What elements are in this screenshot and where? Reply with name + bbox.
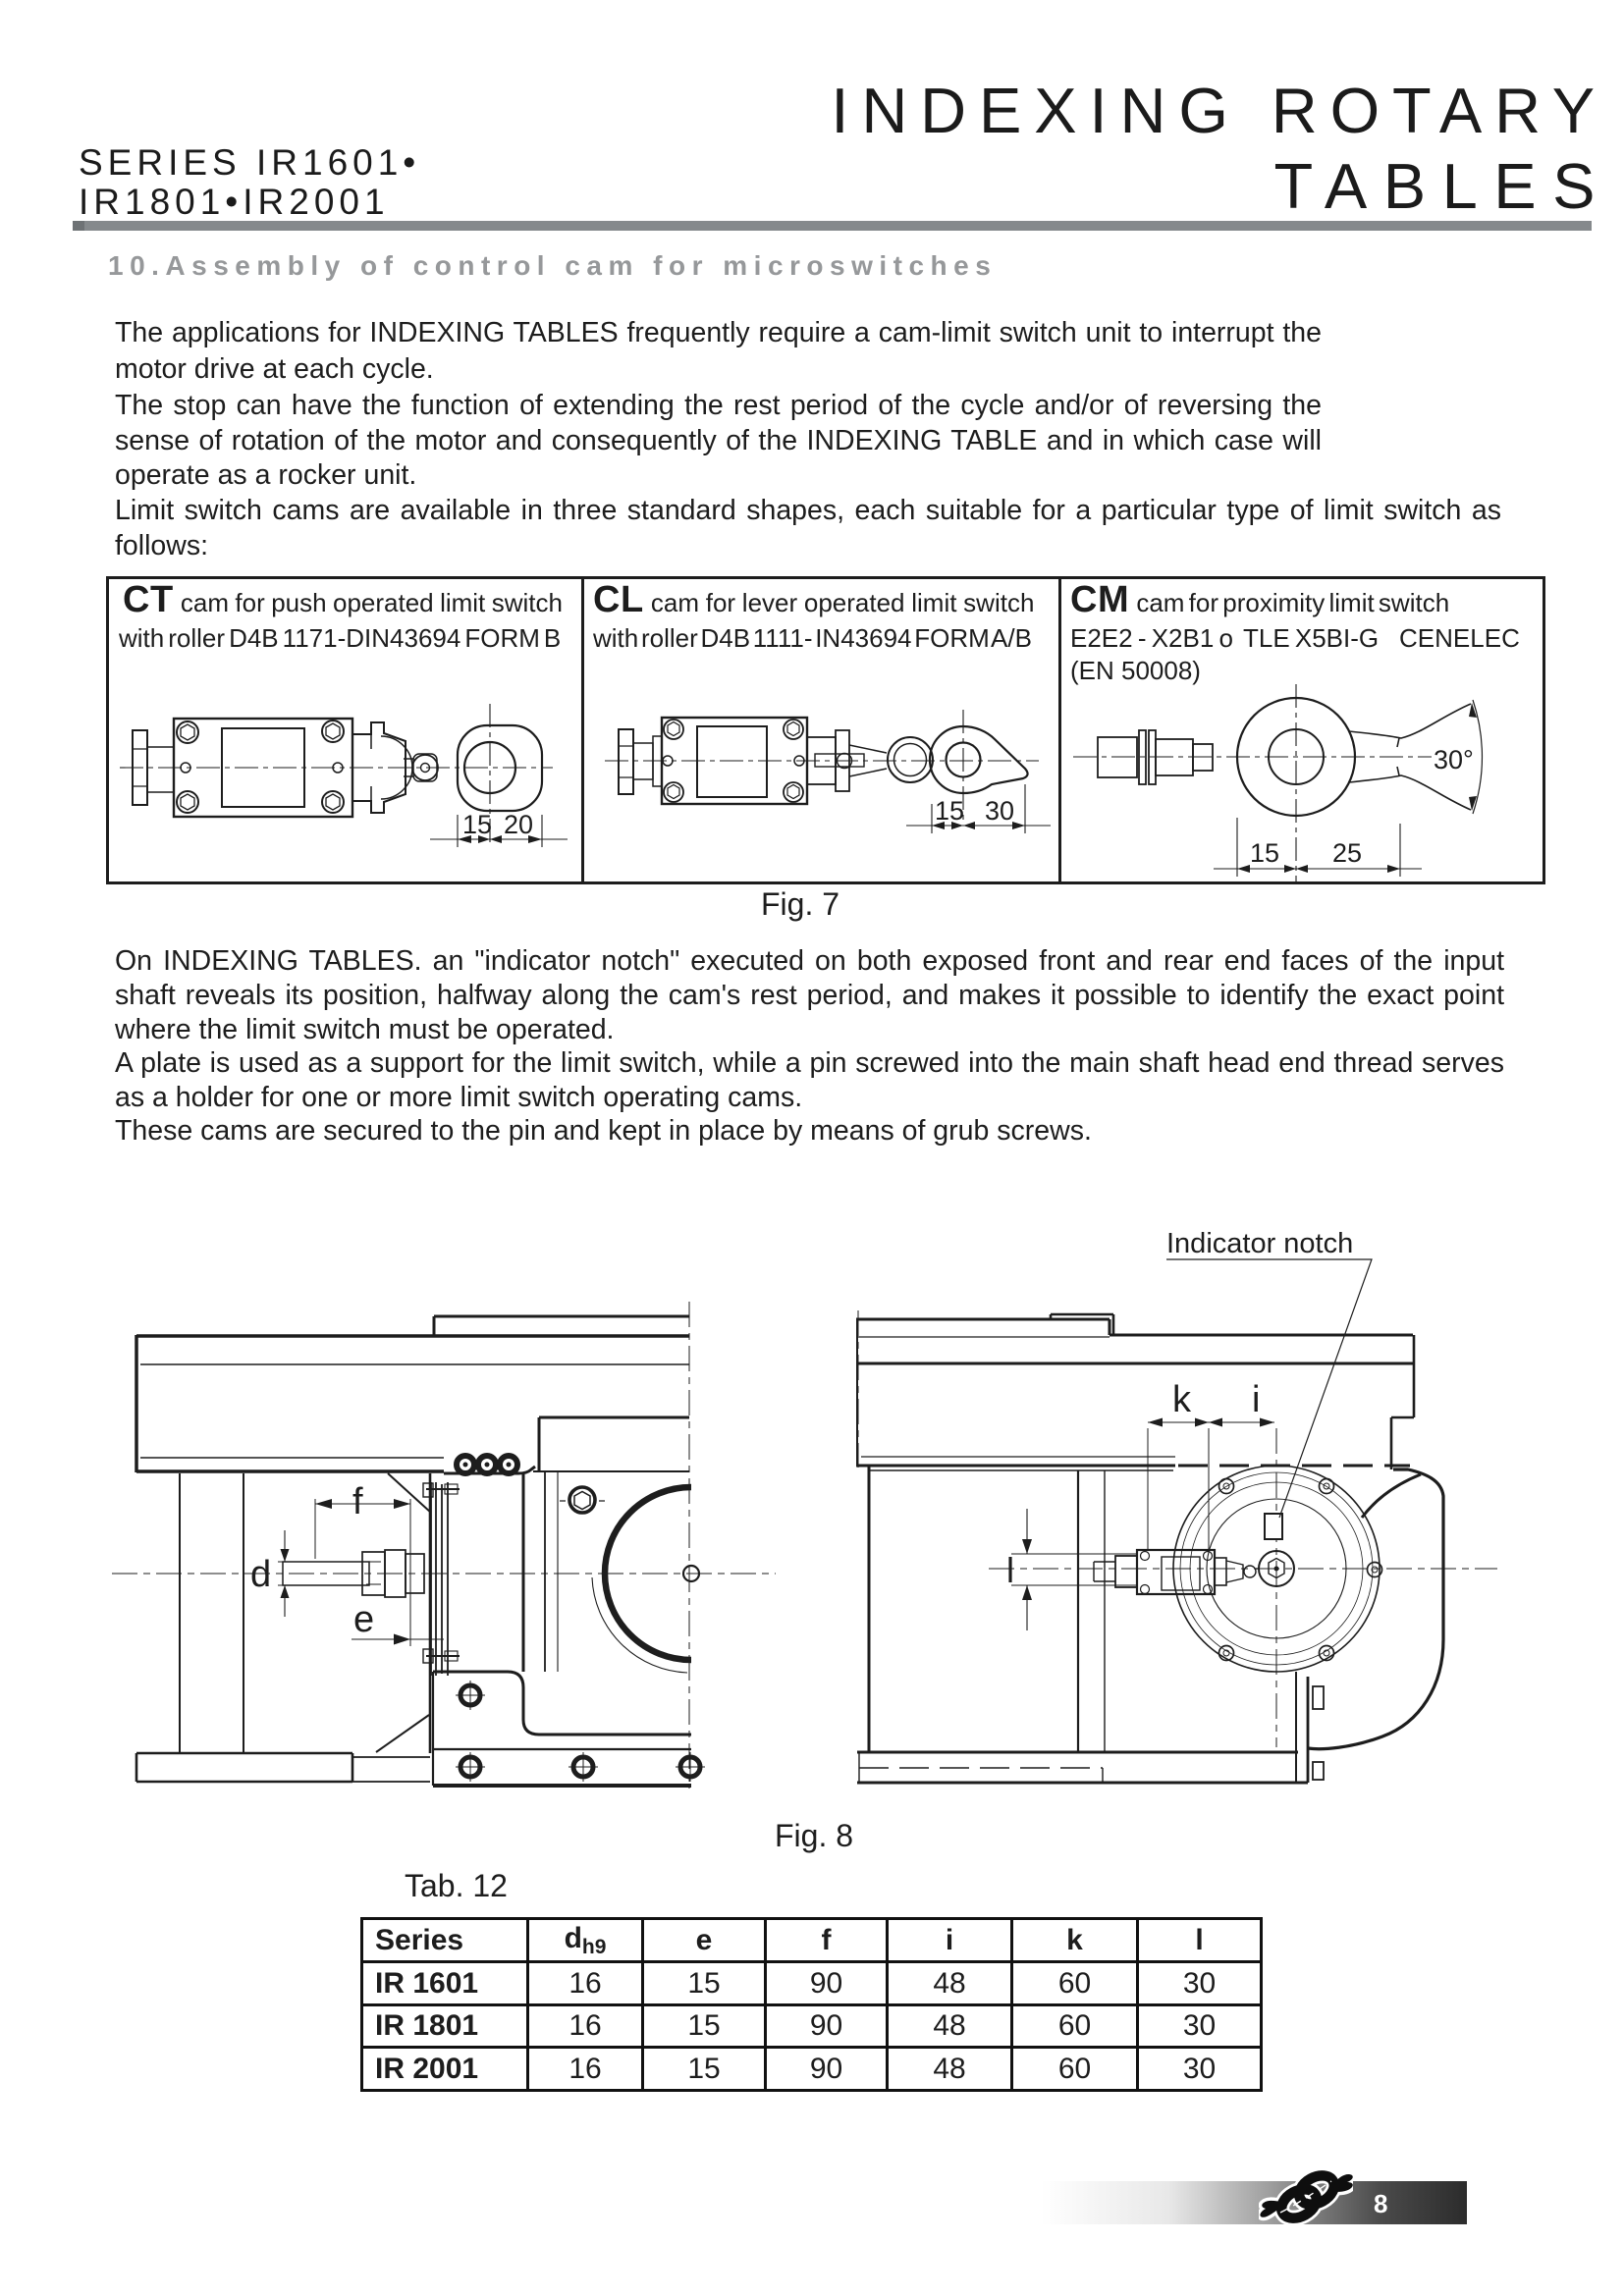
- svg-text:l: l: [1006, 1550, 1014, 1590]
- svg-text:30°: 30°: [1434, 745, 1474, 774]
- svg-text:d: d: [250, 1554, 271, 1595]
- svg-text:15: 15: [935, 796, 964, 826]
- svg-text:30: 30: [985, 796, 1014, 826]
- svg-text:25: 25: [1332, 838, 1362, 868]
- svg-text:15: 15: [462, 810, 492, 839]
- svg-text:20: 20: [504, 810, 533, 839]
- svg-text:e: e: [353, 1599, 374, 1640]
- svg-text:f: f: [352, 1481, 363, 1522]
- svg-text:i: i: [1252, 1379, 1260, 1420]
- svg-text:15: 15: [1250, 838, 1279, 868]
- svg-text:k: k: [1172, 1379, 1192, 1420]
- svg-text:Indicator notch: Indicator notch: [1166, 1228, 1353, 1259]
